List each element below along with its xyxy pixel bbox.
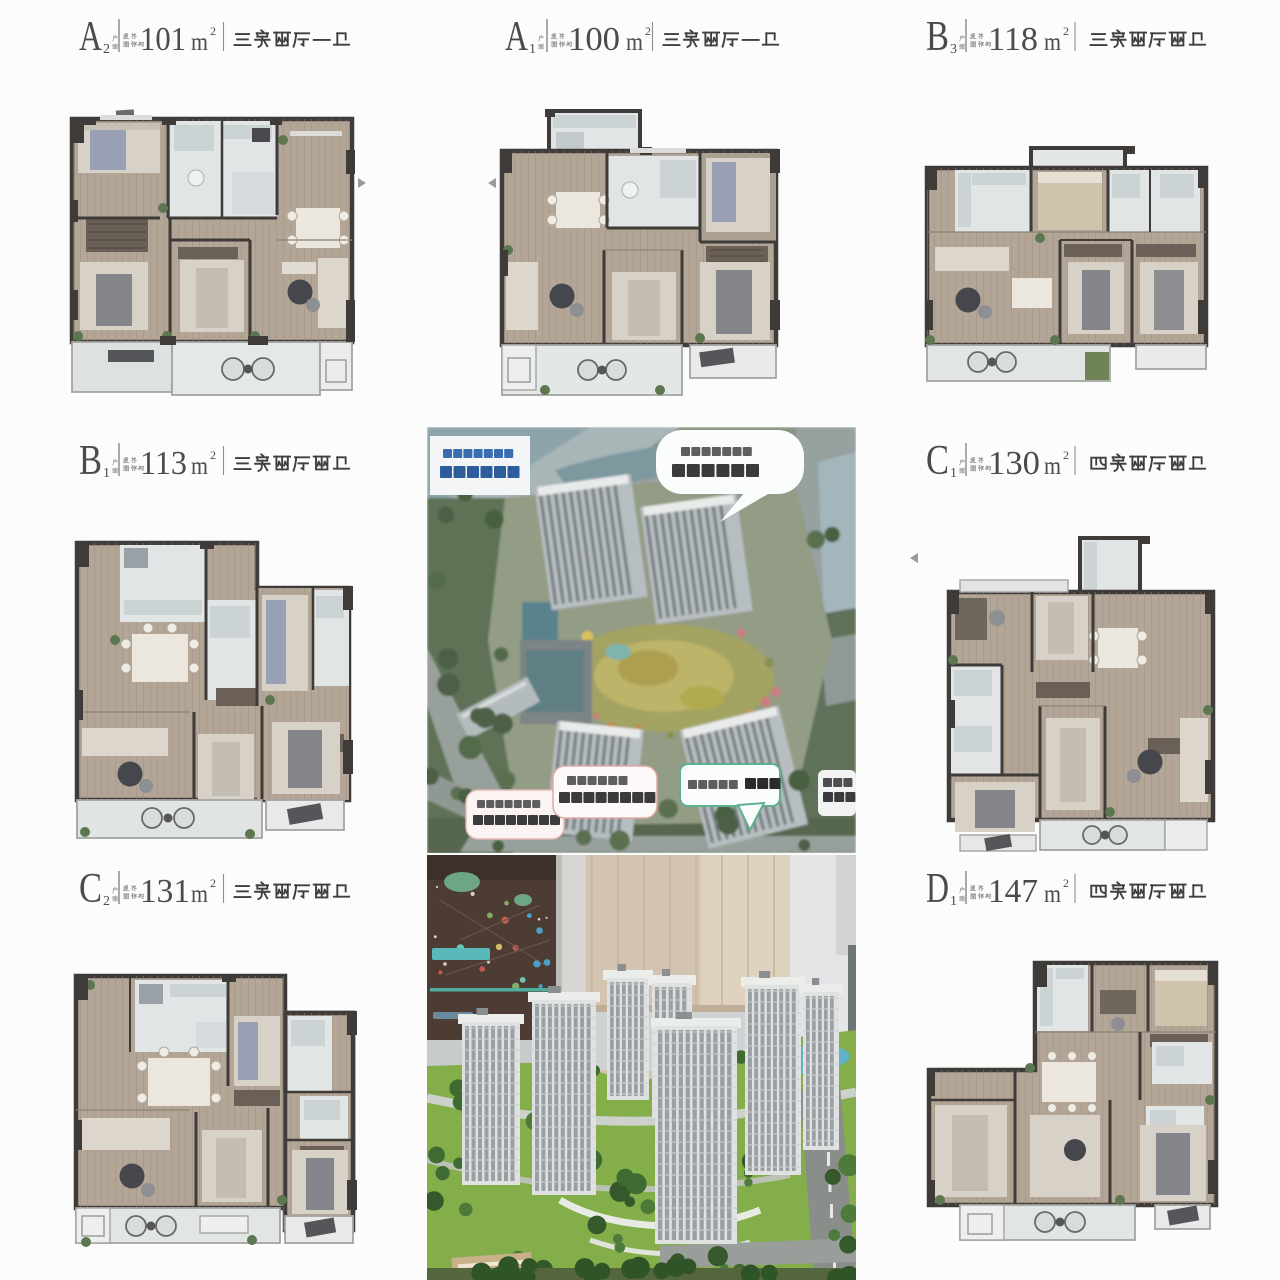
svg-text:m: m [1044,453,1061,480]
svg-text:2: 2 [210,24,216,38]
svg-text:2: 2 [645,24,651,38]
svg-text:m: m [626,29,643,56]
svg-text:m: m [1044,29,1061,56]
svg-text:D: D [926,866,949,912]
svg-text:2: 2 [103,42,110,57]
svg-text:B: B [926,14,949,60]
svg-text:101: 101 [140,21,186,58]
svg-text:A: A [505,14,528,60]
svg-text:147: 147 [988,873,1038,910]
svg-text:2: 2 [210,448,216,462]
svg-text:3: 3 [950,42,957,57]
svg-text:1: 1 [950,466,957,481]
svg-text:1: 1 [103,466,110,481]
svg-text:m: m [191,29,208,56]
svg-text:C: C [926,438,949,484]
svg-text:m: m [191,881,208,908]
svg-text:2: 2 [103,894,110,909]
svg-text:131: 131 [140,873,190,910]
svg-text:2: 2 [210,876,216,890]
svg-text:m: m [1044,881,1061,908]
svg-text:2: 2 [1063,876,1069,890]
svg-text:2: 2 [1063,24,1069,38]
svg-text:A: A [79,14,102,60]
svg-text:2: 2 [1063,448,1069,462]
svg-text:113: 113 [140,445,187,482]
svg-text:1: 1 [950,894,957,909]
svg-text:C: C [79,866,102,912]
svg-text:130: 130 [988,445,1040,482]
svg-text:100: 100 [568,21,620,58]
svg-text:118: 118 [988,21,1038,58]
svg-text:B: B [79,438,102,484]
svg-text:m: m [191,453,208,480]
svg-text:1: 1 [529,42,536,57]
